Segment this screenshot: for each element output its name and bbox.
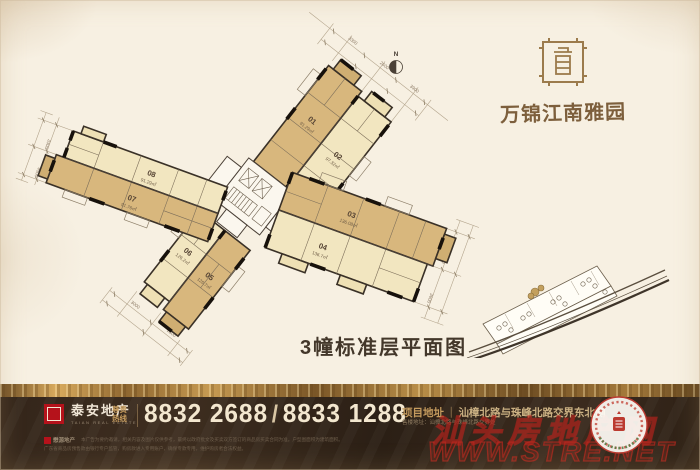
hotline-label: 尊贵 热线 bbox=[112, 405, 127, 423]
phone-number-1: 8832 2688 bbox=[144, 398, 268, 428]
agency-stamp-icon bbox=[588, 394, 650, 456]
ad-page: 3300 2600 3900 3000 2800 bbox=[0, 0, 700, 470]
disclaimer-text-1: 本广告为要约邀请，相关内容及图片仅供参考，最终以政府批文及买卖双方签订的商品房买… bbox=[81, 437, 343, 443]
divider bbox=[137, 404, 138, 427]
disclaimer-line-1: 懋源地产 本广告为要约邀请，相关内容及图片仅供参考，最终以政府批文及买卖双方签订… bbox=[44, 436, 343, 444]
phone-number-2: 8833 1288 bbox=[283, 398, 407, 428]
developer-logo-icon bbox=[44, 404, 64, 424]
partner-logo-icon bbox=[44, 437, 51, 444]
hotline-numbers: 8832 2688/8833 1288 bbox=[144, 398, 407, 429]
disclaimer-text-2: 广东省商品房预售款由银行专户监管，购房款进入专用账户，确保专款专用，维护购房者合… bbox=[44, 446, 246, 452]
dim-label: 3300 bbox=[44, 139, 52, 151]
phone-separator: / bbox=[268, 401, 283, 428]
hotline-label-line2: 热线 bbox=[112, 414, 127, 423]
developer-subtitle: TAIAN REAL ESTATE bbox=[71, 420, 137, 425]
hotline-label-line1: 尊贵 bbox=[112, 405, 127, 414]
partner-name: 懋源地产 bbox=[53, 436, 75, 444]
location-map bbox=[465, 240, 670, 358]
disclaimer-line-2: 广东省商品房预售款由银行专户监管，购房款进入专用账户，确保专款专用，维护购房者合… bbox=[44, 446, 246, 452]
dim-label: 2600 bbox=[379, 60, 390, 71]
dim-label: 3300 bbox=[347, 36, 358, 47]
dim-label: 3600 bbox=[426, 293, 434, 305]
brand-seal-icon bbox=[537, 36, 589, 88]
developer-name: 泰安地产 bbox=[71, 404, 137, 418]
dim-label: 3000 bbox=[130, 300, 141, 311]
brand-name: 万锦江南雅园 bbox=[478, 95, 649, 128]
brand-logo: 万锦江南雅园 bbox=[478, 36, 648, 126]
north-compass-icon: N bbox=[390, 51, 403, 74]
north-label: N bbox=[394, 51, 399, 58]
plan-caption: 3幢标准层平面图 bbox=[300, 331, 467, 360]
dim-label: 3900 bbox=[409, 84, 420, 95]
